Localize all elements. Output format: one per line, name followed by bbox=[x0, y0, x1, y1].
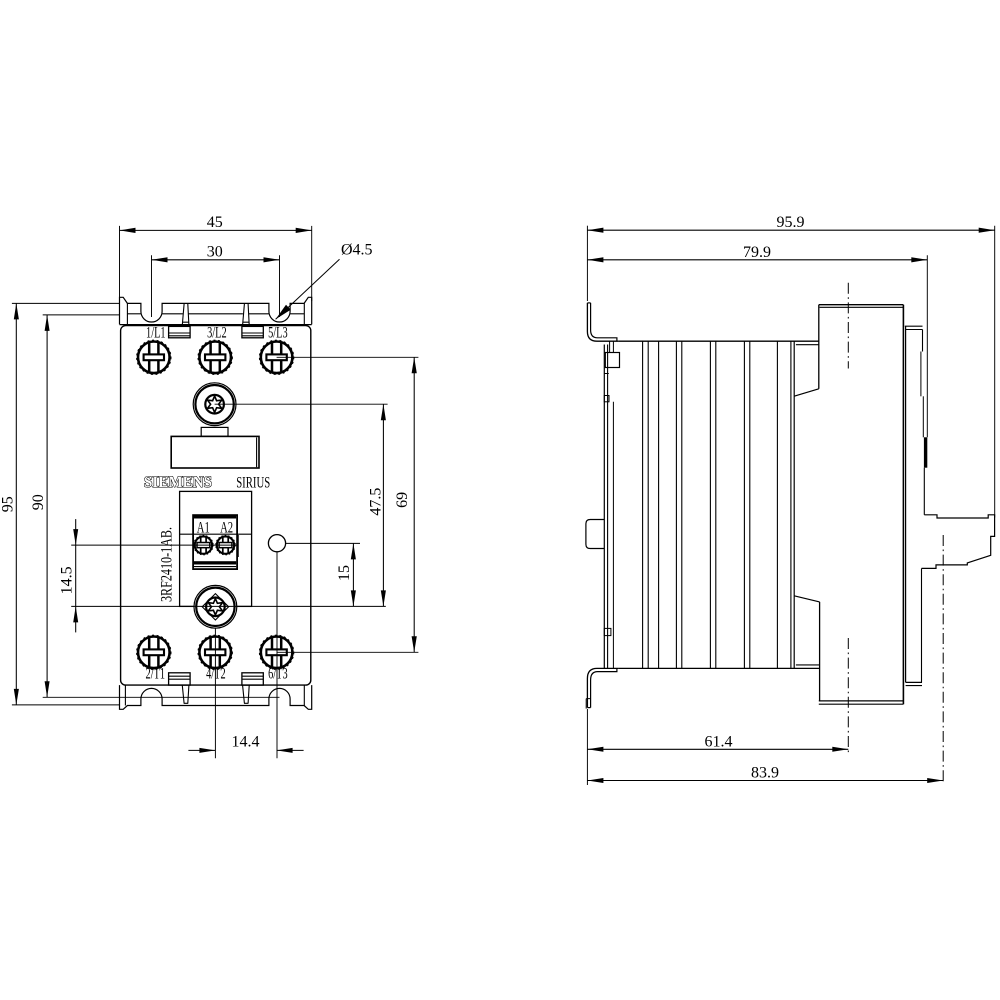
svg-text:15: 15 bbox=[336, 565, 353, 581]
svg-text:95.9: 95.9 bbox=[777, 214, 805, 231]
svg-text:Ø4.5: Ø4.5 bbox=[341, 241, 373, 258]
svg-text:14.5: 14.5 bbox=[59, 566, 76, 594]
svg-text:5/L3: 5/L3 bbox=[268, 324, 288, 341]
svg-text:1/L1: 1/L1 bbox=[146, 324, 166, 341]
svg-text:83.9: 83.9 bbox=[751, 765, 779, 782]
svg-text:95: 95 bbox=[0, 496, 16, 512]
svg-text:45: 45 bbox=[207, 214, 223, 231]
svg-text:3/L2: 3/L2 bbox=[207, 324, 227, 341]
svg-text:79.9: 79.9 bbox=[743, 244, 771, 261]
svg-text:61.4: 61.4 bbox=[705, 733, 733, 750]
svg-text:90: 90 bbox=[30, 494, 47, 510]
svg-text:47.5: 47.5 bbox=[368, 488, 385, 516]
svg-text:14.4: 14.4 bbox=[232, 733, 260, 750]
svg-text:30: 30 bbox=[207, 244, 223, 261]
svg-text:69: 69 bbox=[394, 492, 411, 508]
svg-text:SIRIUS: SIRIUS bbox=[236, 474, 270, 491]
svg-text:3RF2410-1AB.: 3RF2410-1AB. bbox=[159, 527, 176, 602]
svg-text:SIEMENS: SIEMENS bbox=[144, 474, 212, 491]
